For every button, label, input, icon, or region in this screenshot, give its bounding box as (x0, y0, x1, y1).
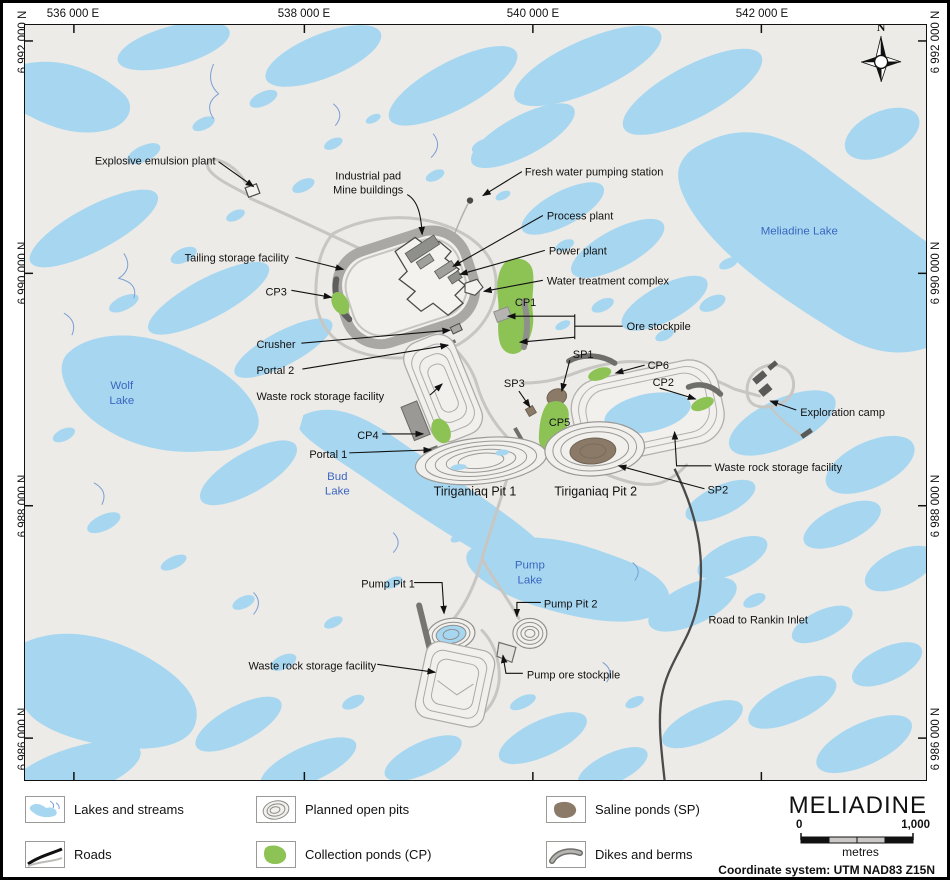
label-cp6: CP6 (648, 360, 669, 372)
label-explosive-emulsion-plant: Explosive emulsion plant (95, 156, 216, 168)
scale-bar-graphic (788, 831, 933, 845)
label-sp1: SP1 (573, 349, 594, 361)
label-power-plant: Power plant (549, 245, 607, 257)
label-crusher: Crusher (256, 339, 295, 351)
label-pump-pit-1: Pump Pit 1 (361, 579, 415, 591)
legend-item-roads: Roads (25, 841, 112, 868)
axis-label-right-6988000n: 6 988 000 N (929, 456, 943, 556)
legend-label: Dikes and berms (595, 847, 693, 862)
label-pump-pit-2: Pump Pit 2 (544, 598, 598, 610)
label-pump-lake-line2: Lake (517, 575, 542, 587)
axis-label-right-6992000n: 6 992 000 N (929, 0, 943, 92)
legend-item-lakes-and-streams: Lakes and streams (25, 796, 184, 823)
label-tailing-storage-facility: Tailing storage facility (185, 252, 290, 264)
axis-label-right-6986000n: 6 986 000 N (929, 689, 943, 789)
north-arrow-n-label: N (877, 25, 886, 34)
label-water-treatment-complex: Water treatment complex (547, 275, 670, 287)
label-mine-buildings: Mine buildings (333, 185, 404, 197)
scale-end-value: 1,000 (901, 819, 930, 831)
label-cp3: CP3 (265, 286, 286, 298)
map-canvas: Explosive emulsion plant Industrial pad … (24, 24, 927, 781)
legend-item-dikes-and-berms: Dikes and berms (546, 841, 693, 868)
legend-label: Roads (74, 847, 112, 862)
map-title: MELIADINE (667, 792, 927, 820)
axis-label-top-536000e: 536 000 E (23, 7, 123, 21)
scale-bar: 0 1,000 metres (788, 819, 933, 861)
label-ore-stockpile: Ore stockpile (627, 321, 691, 333)
label-wolf-lake-line2: Lake (109, 395, 134, 407)
axis-label-top-538000e: 538 000 E (254, 7, 354, 21)
label-sp2: SP2 (707, 485, 728, 497)
axis-label-top-540000e: 540 000 E (483, 7, 583, 21)
label-bud-lake-line1: Bud (327, 471, 347, 483)
axis-label-right-6990000n: 6 990 000 N (929, 223, 943, 323)
pump-pit-2 (513, 618, 547, 648)
label-sp3: SP3 (504, 378, 525, 390)
label-cp4: CP4 (357, 430, 378, 442)
label-pump-ore-stockpile: Pump ore stockpile (527, 669, 620, 681)
planned-open-pits-swatch-icon (256, 796, 296, 823)
lakes-and-streams-swatch-icon (25, 796, 65, 823)
saline-ponds-swatch-icon (546, 796, 586, 823)
label-pump-lake-line1: Pump (515, 560, 545, 572)
dikes-and-berms-swatch-icon (546, 841, 586, 868)
label-waste-rock-storage-facility-east: Waste rock storage facility (714, 462, 842, 474)
roads-swatch-icon (25, 841, 65, 868)
legend-label: Lakes and streams (74, 802, 184, 817)
fresh-water-pumping-station-marker (467, 197, 473, 203)
label-cp5: CP5 (549, 417, 570, 429)
label-tiriganiaq-pit-2: Tiriganiaq Pit 2 (554, 485, 637, 499)
legend-item-planned-open-pits: Planned open pits (256, 796, 409, 823)
label-waste-rock-storage-facility-west: Waste rock storage facility (256, 391, 384, 403)
label-waste-rock-storage-facility-south: Waste rock storage facility (249, 660, 377, 672)
meliadine-site-map: 536 000 E 538 000 E 540 000 E 542 000 E … (0, 0, 950, 880)
label-cp2: CP2 (653, 377, 674, 389)
label-exploration-camp: Exploration camp (800, 407, 885, 419)
label-cp1: CP1 (515, 297, 536, 309)
label-portal-1: Portal 1 (309, 449, 347, 461)
label-bud-lake-line2: Lake (325, 486, 350, 498)
label-fresh-water-pumping-station: Fresh water pumping station (525, 167, 663, 179)
legend-label: Planned open pits (305, 802, 409, 817)
axis-label-top-542000e: 542 000 E (712, 7, 812, 21)
label-meliadine-lake: Meliadine Lake (761, 225, 838, 237)
coordinate-system-note: Coordinate system: UTM NAD83 Z15N (718, 863, 935, 877)
label-portal-2: Portal 2 (256, 365, 294, 377)
label-industrial-pad: Industrial pad (335, 171, 401, 183)
label-road-to-rankin-inlet: Road to Rankin Inlet (708, 614, 807, 626)
scale-unit-label: metres (788, 845, 933, 859)
collection-ponds-swatch-icon (256, 841, 296, 868)
label-tiriganiaq-pit-1: Tiriganiaq Pit 1 (434, 485, 517, 499)
label-wolf-lake-line1: Wolf (110, 380, 134, 392)
legend-label: Collection ponds (CP) (305, 847, 431, 862)
label-process-plant: Process plant (547, 210, 613, 222)
scale-start-value: 0 (796, 819, 802, 831)
legend-item-collection-ponds: Collection ponds (CP) (256, 841, 431, 868)
